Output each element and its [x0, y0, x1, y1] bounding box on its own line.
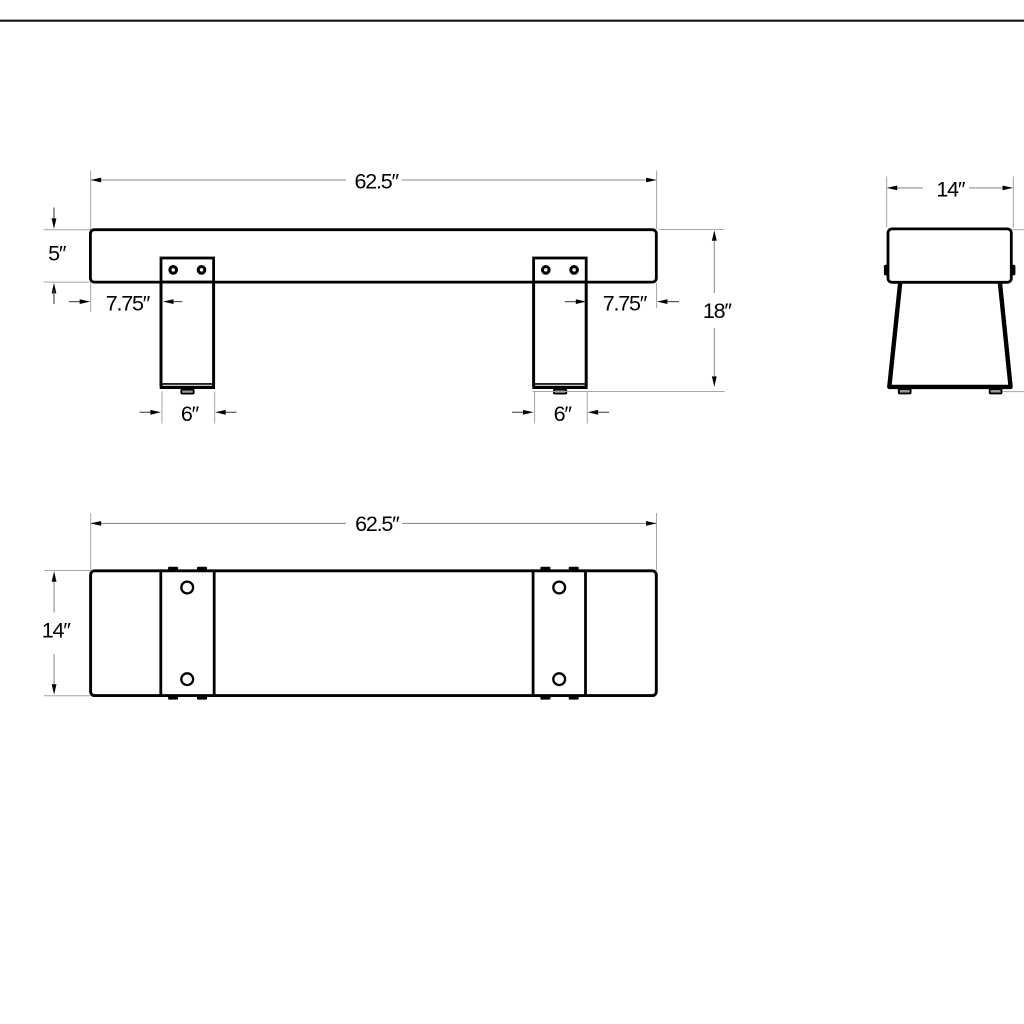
- svg-text:7.75″: 7.75″: [106, 291, 151, 315]
- svg-text:7.75″: 7.75″: [603, 291, 648, 315]
- svg-text:6″: 6″: [181, 402, 200, 426]
- svg-text:18″: 18″: [703, 299, 733, 323]
- svg-text:5″: 5″: [48, 242, 67, 266]
- svg-text:62.5″: 62.5″: [354, 170, 399, 194]
- svg-text:62.5″: 62.5″: [355, 512, 400, 536]
- svg-text:14″: 14″: [936, 177, 966, 201]
- svg-text:6″: 6″: [554, 402, 573, 426]
- svg-text:14″: 14″: [42, 619, 72, 643]
